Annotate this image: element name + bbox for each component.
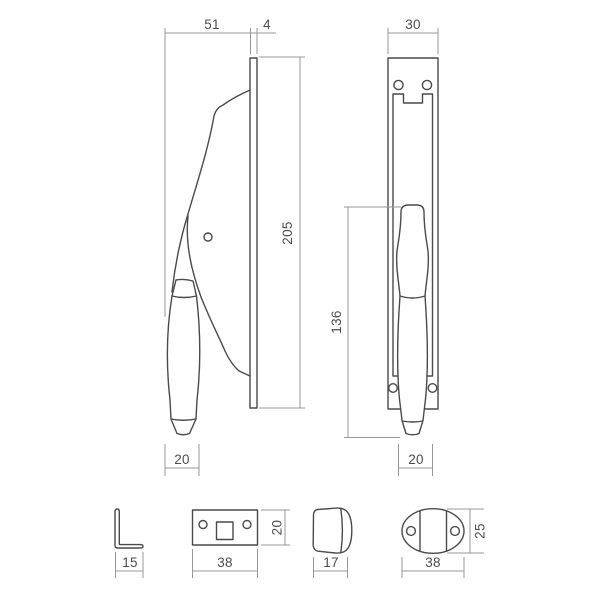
side-view-body-silhouette [172, 90, 250, 292]
front-length-dim-label: 136 [329, 310, 344, 333]
side-view-grip [167, 279, 199, 434]
angle-keeper-width-dim-label: 15 [122, 555, 138, 570]
front-width-dim-label: 30 [405, 17, 421, 32]
side-height-dim-label: 205 [280, 221, 295, 244]
strike-plate-screw-hole-left [199, 521, 207, 529]
strike-plate-width-dim-label: 38 [217, 555, 233, 570]
oval-keeper-screw-hole-right [451, 527, 460, 536]
oval-keeper-outline [402, 509, 464, 554]
front-view-handle [397, 205, 429, 435]
side-depth-dim-label: 51 [204, 17, 220, 32]
side-grip-width-dim-label: 20 [174, 452, 190, 467]
side-view [167, 58, 257, 435]
oval-keeper-width-dim-label: 38 [425, 555, 441, 570]
strike-plate-view: 38 20 [193, 510, 291, 578]
strike-plate-height-dim-label: 20 [270, 520, 285, 536]
front-view-screw-hole-top-right [422, 80, 431, 89]
front-view-screw-hole-bottom-left [389, 384, 398, 393]
angle-keeper-view: 15 [115, 509, 143, 578]
cap-outline [313, 508, 352, 553]
oval-keeper-view: 38 25 [402, 509, 488, 578]
side-plate-thickness-dim-label: 4 [263, 17, 271, 32]
front-view [388, 58, 438, 435]
cap-view: 17 [313, 508, 352, 578]
side-view-screw-hole [204, 233, 212, 241]
technical-drawing-canvas: 51 4 205 20 30 136 20 15 [0, 0, 600, 600]
strike-plate-screw-hole-right [243, 521, 251, 529]
side-view-backplate [250, 58, 257, 408]
front-grip-width-dim-label: 20 [408, 452, 424, 467]
front-view-screw-hole-bottom-right [428, 384, 437, 393]
oval-keeper-height-dim-label: 25 [473, 523, 488, 539]
cap-width-dim-label: 17 [323, 555, 339, 570]
strike-plate-square-hole [217, 522, 234, 540]
angle-keeper-profile [115, 509, 143, 548]
oval-keeper-screw-hole-left [407, 527, 416, 536]
technical-drawing-page: 51 4 205 20 30 136 20 15 [0, 0, 600, 600]
front-view-screw-hole-top-left [394, 80, 403, 89]
